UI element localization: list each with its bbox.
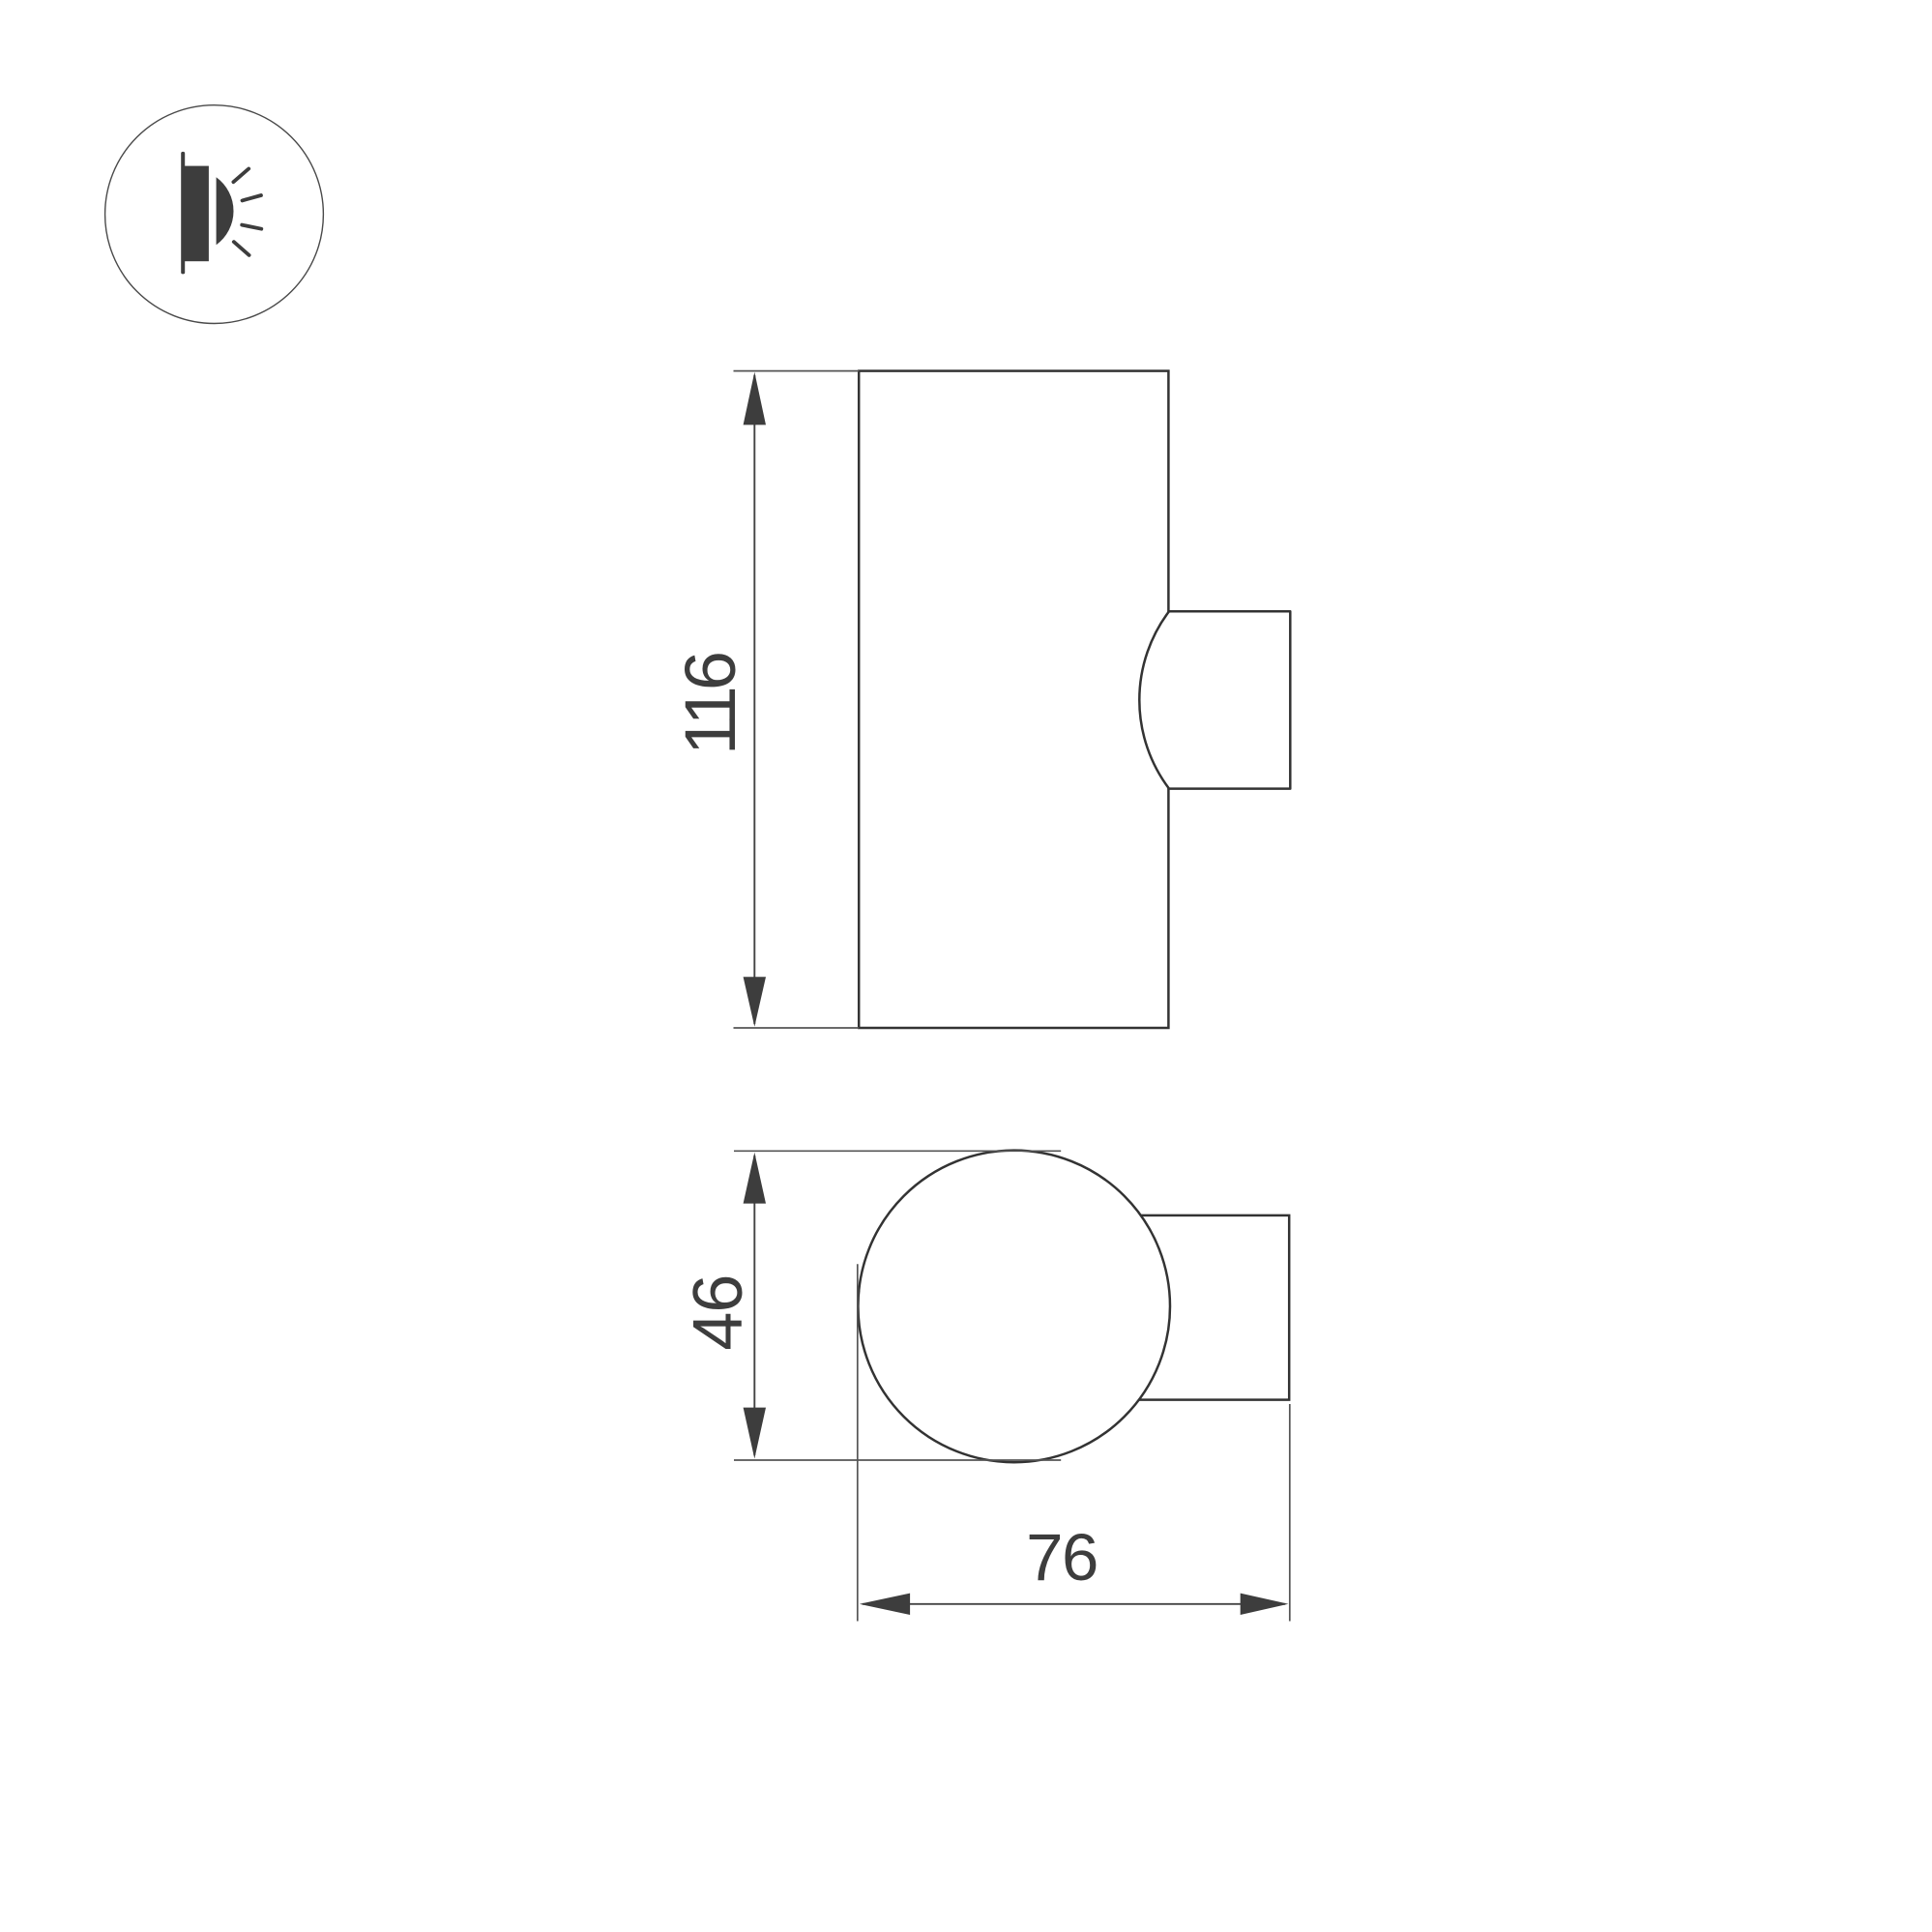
svg-text:46: 46: [680, 1275, 757, 1351]
svg-text:116: 116: [670, 654, 750, 755]
svg-text:76: 76: [1026, 1520, 1098, 1595]
